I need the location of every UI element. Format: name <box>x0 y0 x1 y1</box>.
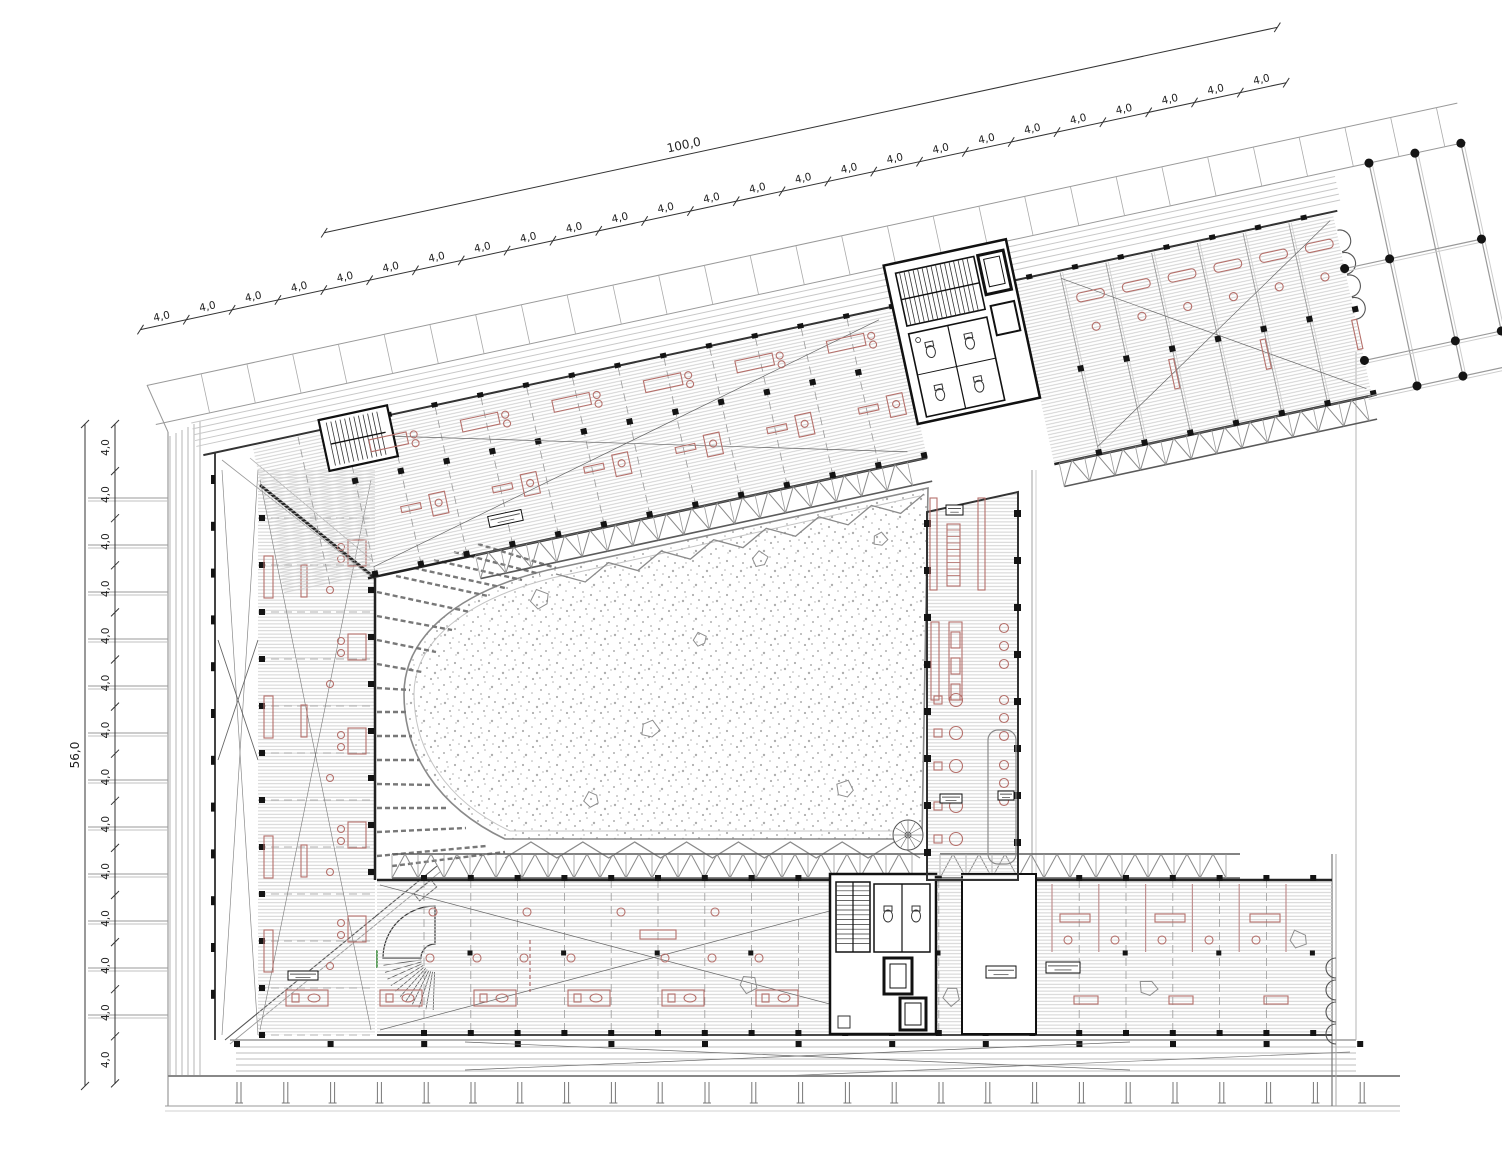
dimension-label: 4,0 <box>1206 82 1225 97</box>
dimension-label: 4,0 <box>381 260 400 275</box>
dimension-label: 4,0 <box>100 769 112 786</box>
dimension-label: 4,0 <box>977 131 996 146</box>
dimension-label: 4,0 <box>1069 112 1088 127</box>
dimension-label: 4,0 <box>100 439 112 456</box>
dimension-label: 4,0 <box>931 141 950 156</box>
dimension-label: 4,0 <box>100 628 112 645</box>
room-tag <box>986 966 1016 978</box>
dimension-label: 4,0 <box>100 863 112 880</box>
dimension-label: 4,0 <box>611 210 630 225</box>
room-tag <box>1046 962 1080 973</box>
bottom-room <box>962 874 1036 1034</box>
dimension-label: 4,0 <box>427 250 446 265</box>
dimension-label: 4,0 <box>1115 102 1134 117</box>
central-bar <box>924 492 1021 880</box>
dimension-label: 4,0 <box>656 201 675 216</box>
bottom-wing <box>286 854 1336 1044</box>
dimension-label: 4,0 <box>100 533 112 550</box>
room-tag <box>998 791 1014 800</box>
dimension-label: 56,0 <box>68 742 82 769</box>
dimension-label: 4,0 <box>336 270 355 285</box>
dimension-label: 4,0 <box>100 1004 112 1021</box>
dimension-label: 4,0 <box>794 171 813 186</box>
dimension-label: 4,0 <box>152 309 171 324</box>
dimension-label: 4,0 <box>748 181 767 196</box>
floor-plan-canvas: 100,04,04,04,04,04,04,04,04,04,04,04,04,… <box>0 0 1502 1157</box>
dimension-label: 4,0 <box>100 910 112 927</box>
dimension-label: 4,0 <box>840 161 859 176</box>
dimension-label: 4,0 <box>1160 92 1179 107</box>
dimension-label: 4,0 <box>519 230 538 245</box>
dimension-label: 4,0 <box>702 191 721 206</box>
dimension-label: 4,0 <box>244 289 263 304</box>
room-tag <box>946 505 963 515</box>
left-dimension: 56,04,04,04,04,04,04,04,04,04,04,04,04,0… <box>68 420 119 1090</box>
room-tag <box>288 971 318 980</box>
dimension-label: 4,0 <box>290 280 309 295</box>
spiral-stair-small <box>893 820 923 850</box>
dimension-label: 4,0 <box>100 580 112 597</box>
floor-plan-stage: 100,04,04,04,04,04,04,04,04,04,04,04,04,… <box>0 0 1502 1157</box>
dimension-label: 4,0 <box>100 957 112 974</box>
dimension-label: 4,0 <box>885 151 904 166</box>
room-tag <box>940 794 962 803</box>
dimension-label: 4,0 <box>100 486 112 503</box>
dimension-label: 4,0 <box>100 675 112 692</box>
dimension-label: 4,0 <box>100 722 112 739</box>
dimension-label: 4,0 <box>473 240 492 255</box>
dimension-label: 4,0 <box>100 1051 112 1068</box>
dimension-label: 4,0 <box>100 816 112 833</box>
dimension-label: 4,0 <box>198 299 217 314</box>
dimension-label: 4,0 <box>565 220 584 235</box>
bottom-core <box>830 874 936 1034</box>
dimension-label: 4,0 <box>1023 122 1042 137</box>
dimension-label: 4,0 <box>1252 72 1271 87</box>
